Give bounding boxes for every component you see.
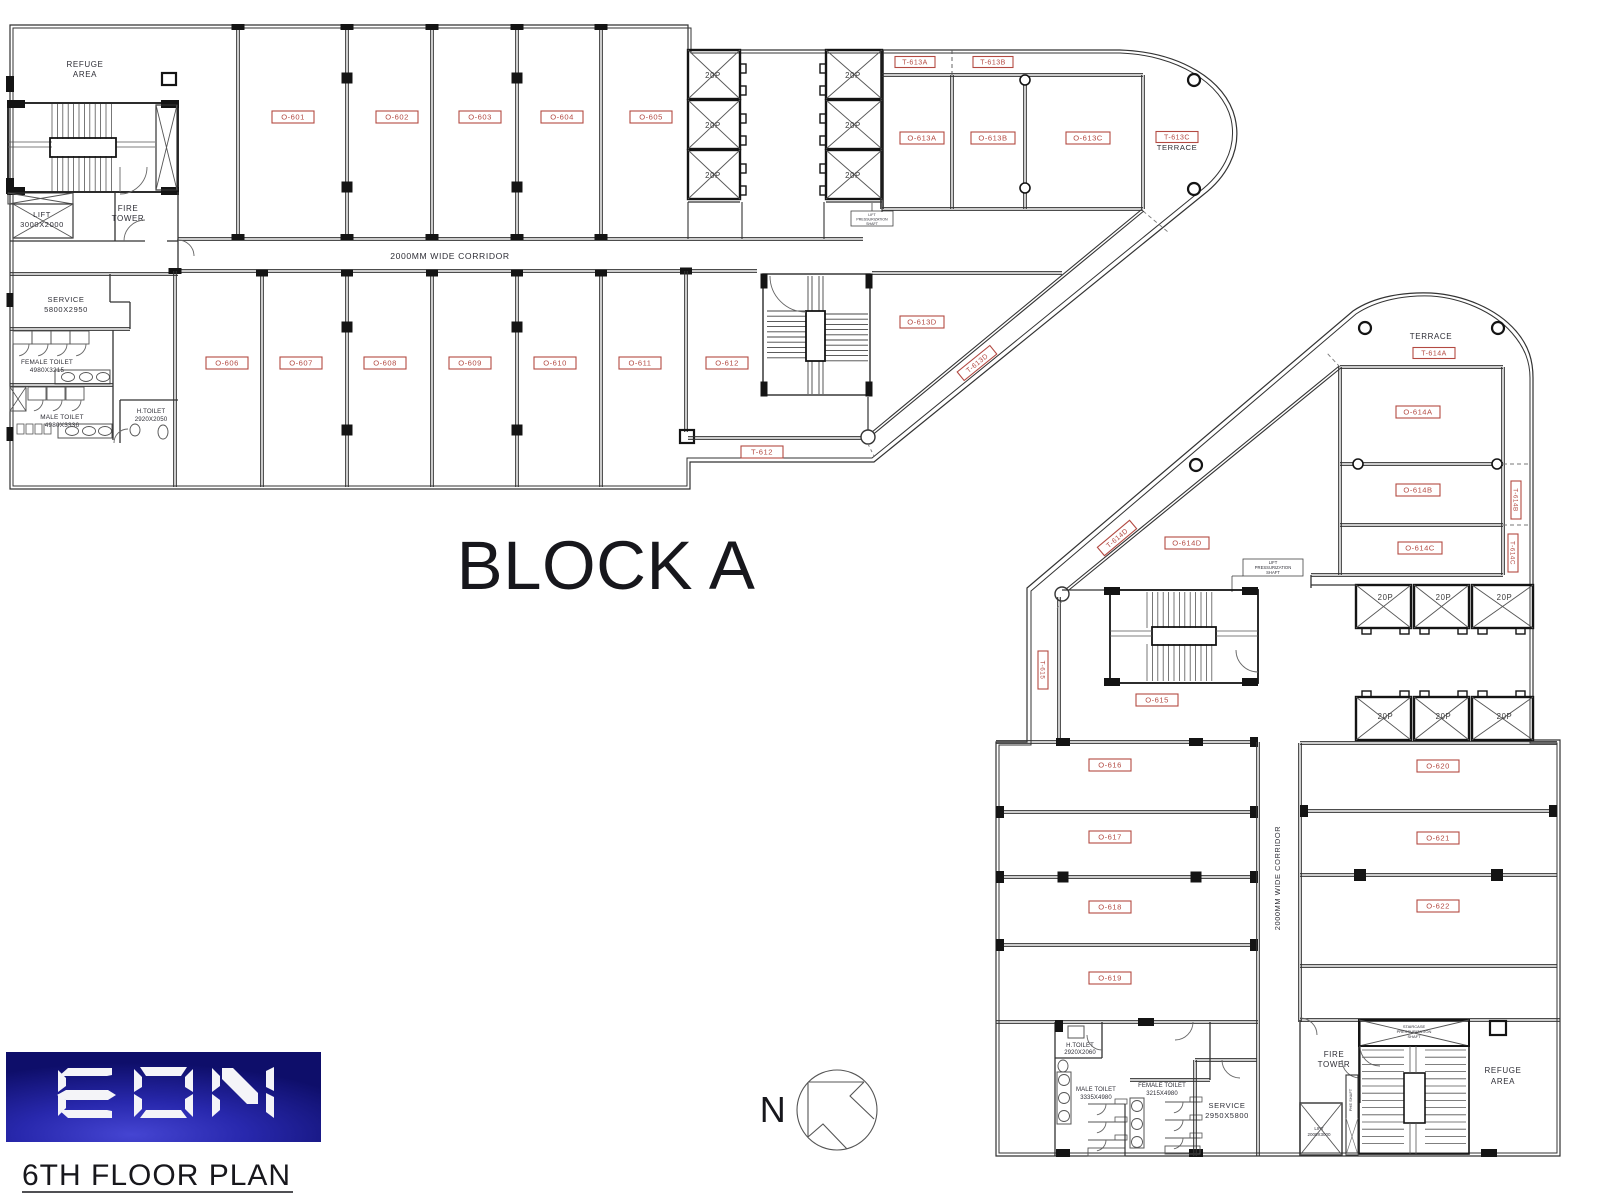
svg-text:O-606: O-606	[215, 359, 239, 368]
svg-text:T-613A: T-613A	[902, 60, 928, 67]
svg-text:TERRACE: TERRACE	[1157, 143, 1198, 152]
svg-text:20P: 20P	[1436, 712, 1452, 721]
svg-text:O-622: O-622	[1426, 902, 1450, 911]
svg-text:REFUGE: REFUGE	[1485, 1066, 1522, 1075]
svg-text:O-602: O-602	[385, 113, 409, 122]
svg-text:O-619: O-619	[1098, 974, 1122, 983]
svg-text:O-614D: O-614D	[1172, 539, 1202, 548]
svg-text:2000X3000: 2000X3000	[1307, 1132, 1331, 1137]
svg-text:20P: 20P	[705, 71, 721, 80]
svg-text:O-611: O-611	[628, 359, 651, 368]
svg-text:20P: 20P	[1378, 712, 1394, 721]
svg-text:T-612: T-612	[751, 448, 773, 457]
svg-text:LIFT: LIFT	[33, 210, 51, 219]
svg-text:T-614B: T-614B	[1512, 488, 1519, 512]
svg-text:20P: 20P	[845, 71, 861, 80]
svg-text:6TH FLOOR PLAN: 6TH FLOOR PLAN	[22, 1159, 291, 1192]
svg-text:O-603: O-603	[468, 113, 492, 122]
svg-text:O-609: O-609	[458, 359, 482, 368]
svg-text:O-621: O-621	[1426, 834, 1450, 843]
svg-text:2920X2060: 2920X2060	[1064, 1050, 1096, 1056]
svg-text:O-613C: O-613C	[1073, 134, 1103, 143]
svg-text:FIRE: FIRE	[118, 204, 139, 213]
svg-text:O-620: O-620	[1426, 762, 1450, 771]
svg-text:AREA: AREA	[1491, 1077, 1515, 1086]
svg-text:PRESSURIZATION: PRESSURIZATION	[856, 218, 888, 222]
svg-text:20P: 20P	[1378, 593, 1394, 602]
svg-text:O-616: O-616	[1098, 761, 1122, 770]
svg-text:O-601: O-601	[281, 113, 305, 122]
svg-text:SHAFT: SHAFT	[866, 222, 879, 226]
svg-text:MALE TOILET: MALE TOILET	[1076, 1087, 1116, 1093]
svg-text:FEMALE TOILET: FEMALE TOILET	[1138, 1083, 1186, 1089]
svg-text:4980X3336: 4980X3336	[45, 422, 80, 429]
svg-text:LIFT: LIFT	[868, 213, 876, 217]
svg-text:T-613B: T-613B	[980, 60, 1006, 67]
svg-text:O-614C: O-614C	[1405, 544, 1435, 553]
svg-text:MALE TOILET: MALE TOILET	[40, 414, 84, 421]
svg-text:2920X2050: 2920X2050	[135, 416, 168, 423]
svg-text:T-614C: T-614C	[1509, 541, 1516, 565]
svg-text:AREA: AREA	[73, 70, 97, 79]
svg-text:2000MM WIDE CORRIDOR: 2000MM WIDE CORRIDOR	[390, 251, 509, 261]
svg-text:SHAFT: SHAFT	[1266, 570, 1280, 575]
svg-text:FIRE: FIRE	[1324, 1050, 1345, 1059]
svg-text:PHE SHAFT: PHE SHAFT	[1348, 1088, 1353, 1111]
svg-text:20P: 20P	[705, 171, 721, 180]
svg-text:O-608: O-608	[373, 359, 397, 368]
svg-text:O-604: O-604	[550, 113, 574, 122]
svg-text:2000MM WIDE CORRIDOR: 2000MM WIDE CORRIDOR	[1273, 826, 1282, 930]
svg-text:20P: 20P	[1497, 712, 1513, 721]
svg-text:5800X2950: 5800X2950	[44, 305, 88, 314]
svg-text:20P: 20P	[845, 121, 861, 130]
svg-text:H.TOILET: H.TOILET	[137, 408, 166, 415]
svg-text:20P: 20P	[1497, 593, 1513, 602]
svg-text:O-610: O-610	[543, 359, 567, 368]
svg-text:O-614A: O-614A	[1403, 408, 1433, 417]
svg-text:O-612: O-612	[715, 359, 739, 368]
svg-text:3215X4980: 3215X4980	[1146, 1091, 1178, 1097]
svg-text:O-607: O-607	[289, 359, 313, 368]
svg-text:O-613B: O-613B	[978, 134, 1007, 143]
svg-text:TOWER: TOWER	[1318, 1060, 1351, 1069]
svg-text:BLOCK A: BLOCK A	[457, 527, 756, 604]
svg-text:FEMALE TOILET: FEMALE TOILET	[21, 359, 73, 366]
svg-text:20P: 20P	[845, 171, 861, 180]
svg-text:O-613D: O-613D	[907, 318, 937, 327]
svg-text:O-617: O-617	[1098, 833, 1122, 842]
svg-text:3000X2000: 3000X2000	[20, 220, 64, 229]
svg-text:SERVICE: SERVICE	[48, 295, 85, 304]
svg-text:O-605: O-605	[639, 113, 663, 122]
svg-text:2950X5800: 2950X5800	[1205, 1111, 1249, 1120]
svg-text:T-614A: T-614A	[1421, 351, 1447, 358]
svg-text:20P: 20P	[1436, 593, 1452, 602]
svg-text:20P: 20P	[705, 121, 721, 130]
svg-text:3335X4980: 3335X4980	[1080, 1095, 1112, 1101]
svg-text:TERRACE: TERRACE	[1410, 332, 1452, 341]
svg-text:REFUGE: REFUGE	[67, 60, 104, 69]
svg-text:LIFT: LIFT	[1314, 1126, 1324, 1131]
svg-text:T-613C: T-613C	[1164, 135, 1190, 142]
svg-text:T-615: T-615	[1039, 661, 1046, 680]
svg-text:O-618: O-618	[1098, 903, 1122, 912]
svg-text:O-613A: O-613A	[907, 134, 937, 143]
svg-text:O-615: O-615	[1145, 696, 1169, 705]
svg-text:TOWER: TOWER	[112, 214, 145, 223]
svg-text:SERVICE: SERVICE	[1209, 1101, 1246, 1110]
svg-text:O-614B: O-614B	[1403, 486, 1432, 495]
svg-text:N: N	[760, 1089, 787, 1130]
svg-text:SHAFT: SHAFT	[1407, 1034, 1421, 1039]
